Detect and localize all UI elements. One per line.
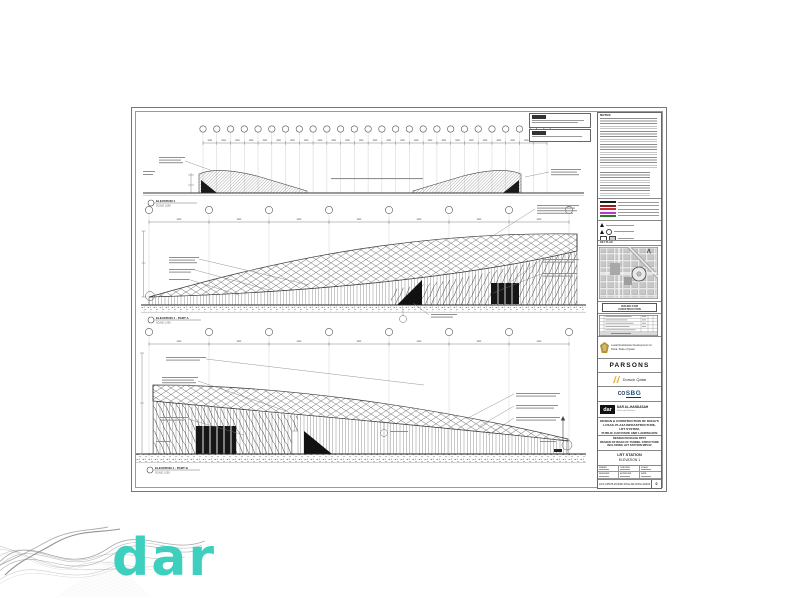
dorsch-logo: Dorsch Qatar: [623, 377, 647, 382]
sbg-logo-box: CO SBG: [598, 387, 661, 402]
project-line: PUBLIC CAR PARK AND LANDSCAPE: [600, 431, 659, 435]
field-checked: CHECKED: [620, 467, 638, 469]
station-profile-left: [199, 170, 307, 193]
elevation-part-a-drawing: ELEVATION 1 - PART A SCALE 1:200: [141, 201, 586, 326]
revision-table: [598, 314, 661, 337]
fields-table: DRAWN CHECKED SCALE DESIGNED APPROVED DA…: [598, 466, 661, 480]
project-line: LUSAIL PLAZA INFRASTRUCTURE, LRT SYSTEM,: [600, 423, 659, 431]
light-symbol-icon: [606, 229, 612, 235]
field-designed: DESIGNED: [599, 473, 617, 475]
dar-mark: dar: [600, 405, 615, 414]
drawing-title-line-2: ELEVATION 1: [600, 458, 659, 462]
dark-louver-bars: [196, 426, 236, 454]
revision-number: 0: [651, 480, 661, 488]
dar-logo-box: dar DAR AL-HANDASAH Shair and Partners: [598, 402, 661, 418]
elevation-label: ELEVATION 1 - PART A: [156, 316, 190, 320]
reference-table-2: [529, 129, 591, 142]
parsons-logo-box: PARSONS: [598, 359, 661, 373]
dark-louver-bars: [491, 283, 519, 304]
parsons-logo: PARSONS: [600, 360, 659, 371]
station-profile-right: [413, 170, 521, 193]
elevation-part-b-drawing: ELEVATION 1 - PART B SCALE 1:200: [136, 323, 586, 476]
ground-gravel: [136, 454, 586, 462]
left-dimension-column: [140, 353, 144, 454]
survey-marker-icon: [600, 223, 604, 227]
field-approved: APPROVED: [620, 473, 638, 475]
level-markers: [188, 173, 194, 193]
sbg-prefix: CO: [618, 391, 626, 397]
elevation-label: ELEVATION 1 - PART B: [155, 466, 189, 470]
drawing-number: LUS-CP078-DCD00-DOH-AR-DWG-00402: [598, 483, 651, 486]
dar-logo: dar: [112, 532, 216, 584]
notes-title: NOTES:: [600, 114, 659, 117]
notes-section: NOTES:: [598, 113, 661, 199]
left-dimension-column: [142, 231, 146, 297]
drawing-sheet: ELEVATION 1 SCALE 1:500: [131, 107, 667, 492]
reference-table-1: [529, 113, 591, 128]
drawing-title-box: LRT STATION ELEVATION 1: [598, 451, 661, 466]
stamp-line-2: CONSTRUCTION: [603, 308, 656, 311]
package-description: DESIGN PACKAGE DP37 DESIGN OF ROAD 2C TU…: [598, 436, 661, 451]
legend-section: [598, 199, 661, 221]
client-location: Doha, State of Qatar: [611, 348, 653, 351]
legend-color-bar: [600, 212, 616, 214]
dorsch-logo-box: Dorsch Qatar: [598, 373, 661, 387]
package-line: INCLUDING LRT STATION MPL02: [600, 444, 659, 448]
key-plan-map: [598, 246, 661, 302]
dorsch-mark-icon: [613, 376, 621, 383]
dar-subtitle: Shair and Partners: [617, 410, 648, 413]
sbg-logo: SBG: [626, 390, 642, 398]
elevation-scale: SCALE 1:200: [155, 472, 170, 475]
drawing-number-row: LUS-CP078-DCD00-DOH-AR-DWG-00402 0: [598, 480, 661, 488]
issued-stamp: ISSUED FOR CONSTRUCTION: [598, 302, 661, 314]
notes-text-lines: [600, 118, 657, 170]
tip-base: [554, 449, 562, 452]
table-header-chip: [532, 131, 546, 135]
client-name: Lusail Real Estate Development Co.: [611, 344, 653, 347]
symbols-legend-section: [598, 221, 661, 241]
legend-color-bar: [600, 205, 616, 207]
client-box: Lusail Real Estate Development Co. Doha,…: [598, 337, 661, 359]
elevation-label-part-b: ELEVATION 1 - PART B SCALE 1:200: [147, 466, 200, 475]
ground-gravel: [141, 305, 586, 312]
entrance-pillar: [292, 431, 298, 454]
legend-color-bar: [600, 201, 616, 203]
legend-color-bar: [600, 208, 616, 210]
legend-color-bar: [600, 215, 616, 217]
notes-text-lines: [600, 172, 650, 196]
survey-marker-icon: [600, 230, 604, 234]
key-plan-svg: [599, 247, 658, 299]
elevation-overall-drawing: ELEVATION 1 SCALE 1:500: [141, 119, 586, 211]
key-plan-title: KEY PLAN: [600, 242, 659, 245]
title-block: NOTES: KEY PLAN: [597, 112, 662, 489]
lusail-emblem-icon: [600, 342, 609, 353]
page: { "watermark": { "logo_text": "dar" }, "…: [0, 0, 800, 600]
project-description: DESIGN & CONSTRUCTION OF DOHA'S LUSAIL P…: [598, 418, 661, 436]
table-header-chip: [532, 115, 546, 119]
